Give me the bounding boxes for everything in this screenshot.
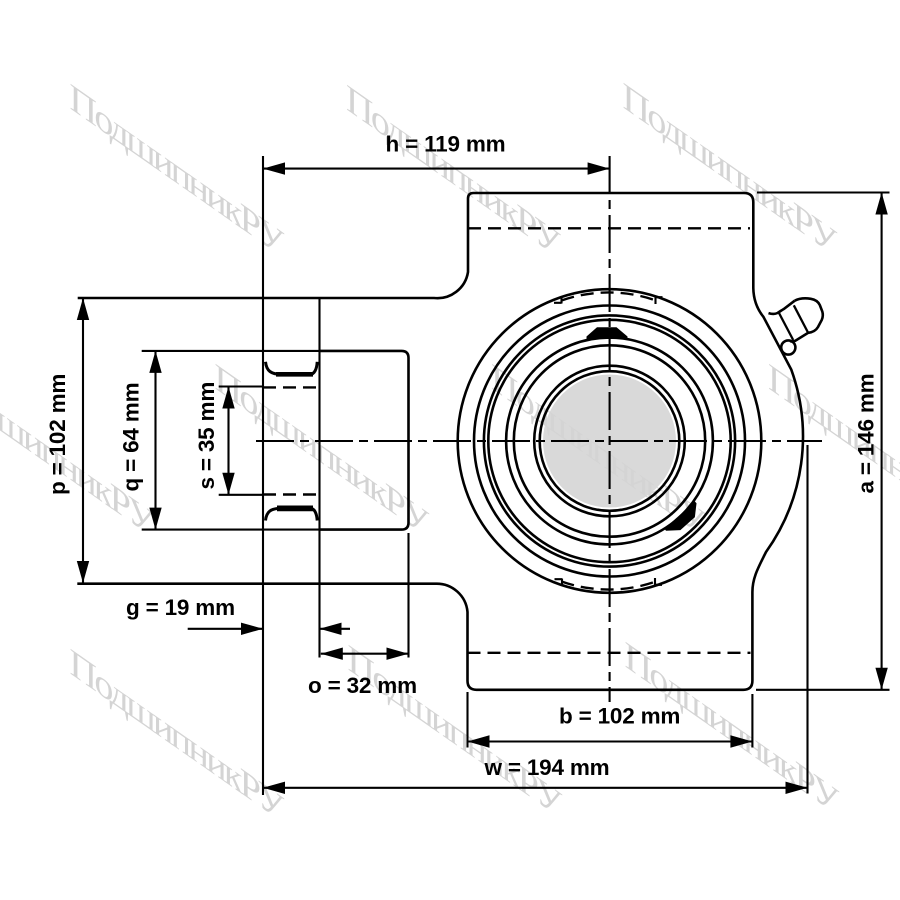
svg-text:h = 119 mm: h = 119 mm (386, 131, 506, 156)
svg-text:g = 19 mm: g = 19 mm (126, 595, 235, 620)
svg-text:s = 35 mm: s = 35 mm (194, 382, 219, 490)
svg-text:w = 194 mm: w = 194 mm (484, 755, 610, 780)
svg-text:q = 64 mm: q = 64 mm (119, 383, 144, 492)
svg-text:a = 146 mm: a = 146 mm (854, 374, 879, 494)
svg-text:p = 102 mm: p = 102 mm (45, 374, 70, 495)
svg-text:b = 102 mm: b = 102 mm (559, 704, 680, 729)
svg-text:o = 32 mm: o = 32 mm (308, 673, 417, 698)
